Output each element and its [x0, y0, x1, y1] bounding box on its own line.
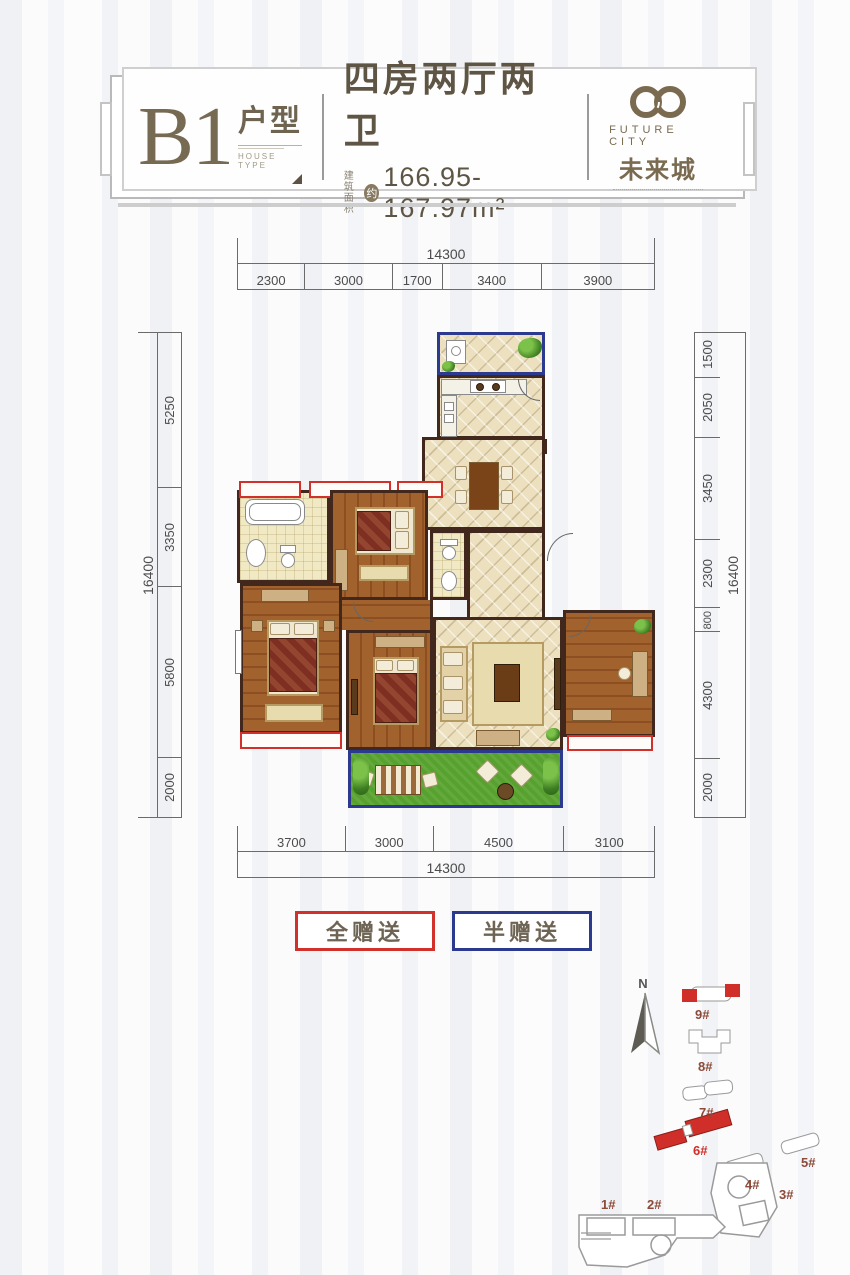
- building-label-8: 8#: [698, 1059, 712, 1074]
- sink: [246, 539, 266, 567]
- unit-summary: 四房两厅两卫 建筑 面积 约 166.95-167.97m²: [344, 50, 568, 224]
- nightstand: [251, 620, 263, 632]
- header-card: B1 户型 HOUSE TYPE 四房两厅两卫 建筑 面积 约 166.95-1…: [110, 75, 745, 199]
- dim-value: 3000: [345, 826, 433, 852]
- wardrobe: [375, 636, 425, 648]
- dimension-total-col: 16400: [720, 332, 746, 818]
- burner: [492, 383, 500, 391]
- sink-basin: [444, 414, 454, 423]
- wardrobe: [261, 589, 309, 602]
- door-arc: [518, 379, 540, 401]
- legend-half-gift: 半赠送: [452, 911, 592, 951]
- area-value: 166.95-167.97m²: [383, 162, 567, 224]
- bathtub-inner: [249, 503, 301, 521]
- dim-value: 800: [702, 611, 714, 629]
- building-label-6: 6#: [693, 1143, 707, 1158]
- room-master-bedroom: [240, 583, 342, 734]
- building-1-2-shape: [579, 1215, 725, 1267]
- dim-value: 16400: [140, 556, 156, 595]
- dim-value: 14300: [237, 852, 654, 878]
- building-label-2: 2#: [647, 1197, 661, 1212]
- bed-quilt: [357, 511, 391, 551]
- dim-value: 4300: [700, 681, 715, 710]
- coffee-table: [494, 664, 520, 702]
- brand-en: FUTURE CITY: [609, 124, 707, 148]
- dim-value: 16400: [725, 556, 741, 595]
- dim-value: 5250: [162, 396, 177, 425]
- vertical-divider: [322, 94, 324, 180]
- building-label-5: 5#: [801, 1155, 815, 1170]
- bed-quilt: [269, 638, 317, 692]
- floor-plan: [237, 330, 670, 818]
- sideboard: [476, 730, 520, 746]
- gift-bay-window-full: [240, 732, 342, 749]
- building-label-7: 7#: [699, 1105, 713, 1120]
- dim-value: 3700: [237, 826, 345, 852]
- sofa-cushion: [443, 676, 463, 690]
- door-arc: [353, 602, 373, 622]
- card-left-tab: [100, 102, 112, 176]
- pillow: [294, 623, 314, 635]
- entry-door-arc: [547, 533, 573, 561]
- plant: [546, 728, 560, 741]
- dim-value: 2000: [700, 773, 715, 802]
- cushion: [509, 763, 533, 787]
- dimension-total-row: 14300: [237, 238, 655, 264]
- approx-badge: 约: [364, 184, 379, 202]
- dim-value: 2300: [237, 264, 304, 290]
- dimension-segments-row: 2300 3000 1700 3400 3900: [237, 264, 655, 290]
- area-label: 建筑 面积: [344, 171, 361, 215]
- door-arc: [569, 615, 591, 637]
- brand-tagline-line: [613, 189, 703, 190]
- toilet-tank: [280, 545, 296, 553]
- dim-value: 1700: [392, 264, 442, 290]
- round-table: [497, 783, 514, 800]
- brand-cn: 未来城: [619, 150, 697, 185]
- dim-value: 1500: [700, 340, 715, 369]
- building-label-1: 1#: [601, 1197, 615, 1212]
- room-bedroom-2: [330, 490, 428, 600]
- pillow: [270, 623, 290, 635]
- room-top-balcony: [437, 332, 545, 375]
- dim-value: 2050: [700, 393, 715, 422]
- site-plan: 9# 8# 7# 6# 5# 4# 3# 1# 2#: [565, 975, 850, 1270]
- tv-cabinet: [351, 679, 358, 715]
- dim-value: 3900: [541, 264, 654, 290]
- room-kitchen: [437, 375, 545, 439]
- building-9-shape: [682, 984, 740, 1002]
- plant: [634, 619, 651, 634]
- dining-table: [469, 462, 499, 510]
- building-label-3: 3#: [779, 1187, 793, 1202]
- brand-logo: FUTURE CITY 未来城: [609, 84, 717, 190]
- dimensions-left: 16400 5250 3350 5800 2000: [138, 332, 182, 818]
- dining-chair: [501, 466, 513, 480]
- desk-chair: [618, 667, 631, 680]
- gift-bay-window-full: [567, 735, 653, 751]
- pillow: [376, 660, 393, 671]
- room-hallway: [467, 530, 545, 620]
- room-corridor: [330, 600, 433, 630]
- toilet: [442, 546, 456, 560]
- dimension-total-row: 14300: [237, 852, 655, 878]
- room-garden-balcony: [348, 750, 563, 808]
- legend-full-gift: 全赠送: [295, 911, 435, 951]
- unit-type-block: 户型 HOUSE TYPE: [238, 96, 302, 184]
- dimension-segments-col: 5250 3350 5800 2000: [158, 332, 182, 818]
- burner: [476, 383, 484, 391]
- lounge-mat: [375, 765, 421, 795]
- cabinet: [572, 709, 612, 721]
- dim-value: 2300: [700, 559, 715, 588]
- infinity-logo-icon: [625, 84, 691, 120]
- room-bathroom-1: [237, 490, 330, 583]
- dim-value: 5800: [162, 658, 177, 687]
- toilet-tank: [440, 539, 458, 546]
- plant: [543, 757, 559, 795]
- dimension-segments-col: 1500 2050 3450 2300 800 4300 2000: [694, 332, 720, 818]
- toilet: [281, 553, 295, 568]
- dim-value: 3400: [442, 264, 541, 290]
- sink-basin: [444, 402, 454, 411]
- plant: [353, 757, 369, 795]
- dim-value: 2000: [162, 773, 177, 802]
- sofa-cushion: [443, 652, 463, 666]
- dining-chair: [501, 490, 513, 504]
- nightstand: [323, 620, 335, 632]
- divider-line: [238, 148, 284, 149]
- room-bathroom-2: [430, 530, 467, 600]
- pillow: [395, 531, 409, 549]
- cushion: [422, 772, 439, 789]
- building-label-4: 4#: [745, 1177, 759, 1192]
- divider-line: [238, 145, 302, 146]
- rooms-title: 四房两厅两卫: [344, 50, 568, 154]
- dimension-segments-row: 3700 3000 4500 3100: [237, 826, 655, 852]
- rug: [359, 565, 409, 581]
- room-bedroom-3: [346, 630, 433, 750]
- cushion: [475, 759, 499, 783]
- tv-cabinet: [554, 658, 561, 710]
- dimension-total-col: 16400: [138, 332, 158, 818]
- dimensions-bottom: 3700 3000 4500 3100 14300: [237, 826, 655, 878]
- dim-value: 3450: [700, 474, 715, 503]
- poster-page: B1 户型 HOUSE TYPE 四房两厅两卫 建筑 面积 约 166.95-1…: [0, 0, 850, 1275]
- dining-chair: [455, 490, 467, 504]
- rug: [265, 704, 323, 722]
- room-bedroom-4: [563, 610, 655, 737]
- dim-value: 14300: [237, 238, 654, 264]
- area-row: 建筑 面积 约 166.95-167.97m²: [344, 162, 568, 224]
- pillow: [395, 511, 409, 529]
- plant: [442, 361, 455, 372]
- vertical-divider: [587, 94, 589, 180]
- window: [235, 630, 242, 674]
- dim-value: 3100: [563, 826, 654, 852]
- plant: [518, 338, 542, 358]
- washing-machine-door: [451, 346, 461, 356]
- dimensions-right: 1500 2050 3450 2300 800 4300 2000 16400: [694, 332, 746, 818]
- dining-chair: [455, 466, 467, 480]
- dimensions-top: 14300 2300 3000 1700 3400 3900: [237, 238, 655, 290]
- sofa-cushion: [443, 700, 463, 714]
- bed-quilt: [375, 673, 417, 723]
- desk: [632, 651, 648, 697]
- unit-code: B1: [138, 95, 232, 179]
- unit-type-cn: 户型: [238, 96, 302, 140]
- corner-triangle-icon: [292, 174, 302, 184]
- room-living: [433, 617, 563, 750]
- gift-window-full: [239, 481, 301, 498]
- card-right-tab: [743, 102, 755, 176]
- pillow: [397, 660, 414, 671]
- sink: [441, 571, 457, 591]
- unit-type-en: HOUSE TYPE: [238, 152, 302, 170]
- dim-value: 3000: [304, 264, 391, 290]
- dim-value: 4500: [433, 826, 564, 852]
- building-label-9: 9#: [695, 1007, 709, 1022]
- dim-value: 3350: [162, 523, 177, 552]
